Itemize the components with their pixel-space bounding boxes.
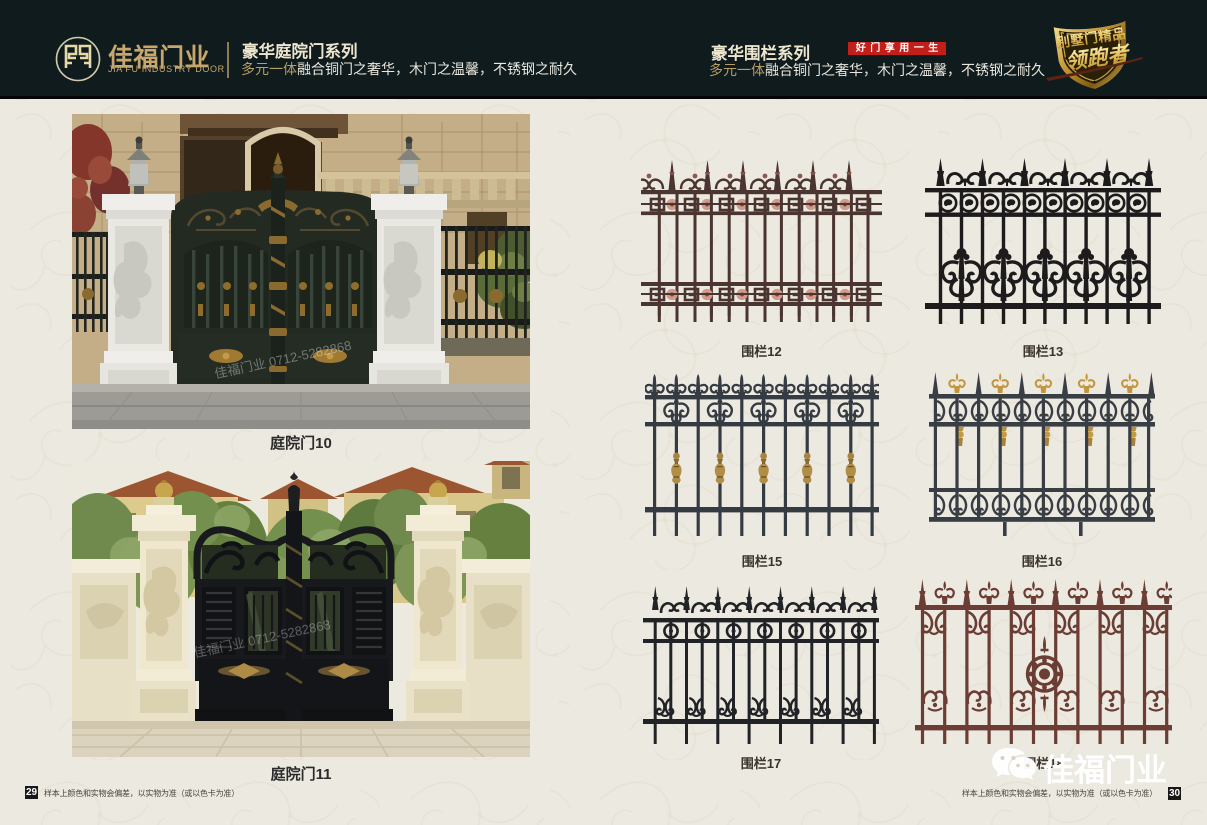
svg-text:佳福门业: 佳福门业 <box>1043 753 1167 787</box>
